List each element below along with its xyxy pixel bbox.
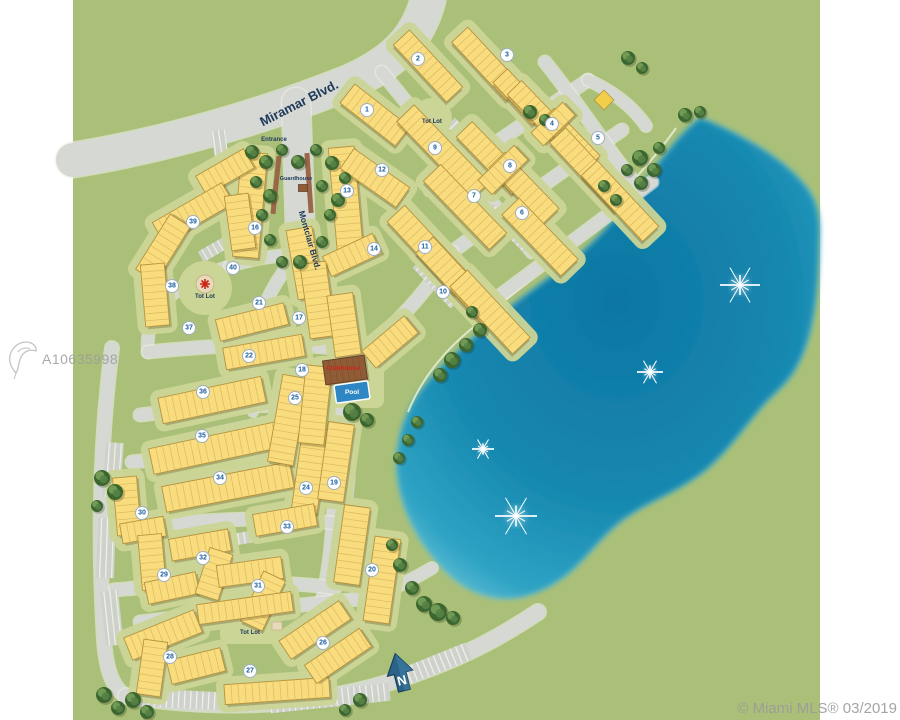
mls-site-plan-photo: 1234567891011121314161718192021222425262…	[0, 0, 900, 720]
tree-mid	[451, 616, 458, 623]
building-number-badge: 17	[293, 312, 306, 325]
building-number-badge: 30	[136, 507, 149, 520]
badge-number: 8	[508, 163, 512, 170]
badge-number: 29	[160, 572, 168, 579]
badge-number: 22	[245, 353, 253, 360]
badge-number: 19	[330, 480, 338, 487]
badge-number: 37	[185, 325, 193, 332]
badge-number: 28	[166, 654, 174, 661]
badge-number: 10	[439, 289, 447, 296]
building-number-badge: 37	[183, 322, 196, 335]
tree-mid	[438, 373, 445, 380]
badge-number: 39	[189, 219, 197, 226]
tree-mid	[657, 146, 663, 152]
badge-number: 24	[302, 485, 310, 492]
tree-mid	[638, 155, 646, 163]
tree-mid	[268, 238, 274, 244]
badge-number: 21	[255, 300, 263, 307]
badge-number: 3	[505, 52, 509, 59]
label-tot-lot-south: Tot Lot	[240, 630, 260, 636]
playground-icon	[200, 279, 210, 289]
tree-mid	[320, 184, 326, 190]
tree-mid	[683, 113, 690, 120]
building-number-badge: 13	[341, 185, 354, 198]
tree-mid	[365, 418, 372, 425]
mls-watermark: A10635998	[6, 338, 118, 380]
tree-mid	[330, 161, 337, 168]
badge-number: 1	[365, 107, 369, 114]
building-number-badge: 31	[252, 580, 265, 593]
building-number-badge: 11	[419, 241, 432, 254]
tree-mid	[145, 710, 152, 717]
tree-mid	[260, 213, 266, 219]
tree-mid	[639, 181, 646, 188]
badge-number: 35	[198, 433, 206, 440]
badge-number: 16	[251, 225, 259, 232]
tree-mid	[296, 160, 303, 167]
tree-mid	[298, 260, 305, 267]
watermark-id: A10635998	[42, 351, 118, 367]
tree-mid	[343, 176, 349, 182]
fountain-center	[514, 514, 518, 518]
site-plan-map: 1234567891011121314161718192021222425262…	[0, 0, 900, 720]
tree-mid	[415, 420, 421, 426]
building-number-badge: 18	[296, 364, 309, 377]
building-number-badge: 24	[300, 482, 313, 495]
label-tot-lot-north: Tot Lot	[422, 119, 442, 125]
fountain-center	[648, 370, 652, 374]
building-number-badge: 9	[429, 142, 442, 155]
building-number-badge: 38	[166, 280, 179, 293]
badge-number: 38	[168, 283, 176, 290]
mls-credit: © Miami MLS® 03/2019	[737, 700, 897, 717]
tree-mid	[280, 260, 286, 266]
tree-mid	[314, 148, 320, 154]
label-tot-lot-west: Tot Lot	[195, 294, 215, 300]
badge-number: 32	[199, 555, 207, 562]
tree-mid	[100, 475, 108, 483]
building-number-badge: 2	[412, 53, 425, 66]
badge-number: 33	[283, 524, 291, 531]
building-number-badge: 4	[546, 118, 559, 131]
building-number-badge: 39	[187, 216, 200, 229]
tree-mid	[113, 489, 121, 497]
tree-mid	[625, 168, 631, 174]
building-number-badge: 29	[158, 569, 171, 582]
tree-mid	[422, 601, 430, 609]
building-number-badge: 14	[368, 243, 381, 256]
tree-mid	[95, 504, 101, 510]
building-number-badge: 19	[328, 477, 341, 490]
building-number-badge: 40	[227, 262, 240, 275]
tree-mid	[464, 343, 471, 350]
badge-number: 27	[246, 668, 254, 675]
badge-number: 12	[378, 167, 386, 174]
tree-mid	[131, 697, 139, 705]
label-entrance: Entrance	[261, 137, 287, 143]
building-number-badge: 21	[253, 297, 266, 310]
building-number-badge: 6	[516, 207, 529, 220]
bird-logo-icon	[6, 338, 40, 380]
badge-number: 34	[216, 475, 224, 482]
tree-mid	[435, 609, 444, 618]
tree-mid	[268, 194, 275, 201]
tree-mid	[328, 213, 334, 219]
tree-mid	[470, 310, 476, 316]
badge-number: 6	[520, 210, 524, 217]
building-number-badge: 3	[501, 49, 514, 62]
tree-mid	[254, 180, 260, 186]
badge-number: 18	[298, 367, 306, 374]
building-number-badge: 26	[317, 637, 330, 650]
badge-number: 2	[416, 56, 420, 63]
tree-mid	[336, 198, 343, 205]
building-number-badge: 5	[592, 132, 605, 145]
tree-mid	[602, 184, 608, 190]
tree-mid	[406, 438, 412, 444]
badge-number: 14	[370, 246, 378, 253]
tot-lot-south-court	[272, 622, 282, 630]
building-number-badge: 10	[437, 286, 450, 299]
badge-number: 7	[472, 193, 476, 200]
tree-mid	[250, 150, 257, 157]
badge-number: 9	[433, 145, 437, 152]
tree-mid	[450, 357, 458, 365]
badge-number: 20	[368, 567, 376, 574]
building-number-badge: 25	[289, 392, 302, 405]
building-number-badge: 12	[376, 164, 389, 177]
badge-number: 30	[138, 510, 146, 517]
label-pool: Pool	[345, 389, 359, 396]
building-number-badge: 1	[361, 104, 374, 117]
building-number-badge: 35	[196, 430, 209, 443]
building-number-badge: 20	[366, 564, 379, 577]
badge-number: 4	[550, 121, 554, 128]
tree-mid	[280, 148, 286, 154]
building-number-badge: 8	[504, 160, 517, 173]
tree-mid	[398, 563, 405, 570]
badge-number: 26	[319, 640, 327, 647]
building-body	[140, 263, 169, 327]
building-number-badge: 28	[164, 651, 177, 664]
tree-mid	[358, 698, 365, 705]
tree-mid	[264, 160, 271, 167]
badge-number: 11	[421, 244, 429, 251]
guardhouse-building	[299, 185, 308, 192]
tree-mid	[102, 692, 110, 700]
building-number-badge: 16	[249, 222, 262, 235]
fountain-center	[481, 447, 485, 451]
tree-mid	[349, 409, 358, 418]
building-number-badge: 33	[281, 521, 294, 534]
tree-mid	[528, 110, 535, 117]
badge-number: 13	[343, 188, 351, 195]
badge-number: 5	[596, 135, 600, 142]
tree-mid	[614, 198, 620, 204]
tree-mid	[652, 168, 659, 175]
tree-mid	[410, 586, 417, 593]
label-guardhouse: Guardhouse	[280, 176, 312, 182]
tree-mid	[116, 706, 123, 713]
badge-number: 25	[291, 395, 299, 402]
building-number-badge: 7	[468, 190, 481, 203]
tree-mid	[478, 328, 485, 335]
badge-number: 36	[199, 389, 207, 396]
building-number-badge: 27	[244, 665, 257, 678]
fountain-center	[738, 283, 742, 287]
tree-mid	[640, 66, 646, 72]
badge-number: 31	[254, 583, 262, 590]
tree-mid	[698, 110, 704, 116]
building-number-badge: 36	[197, 386, 210, 399]
label-clubhouse: Clubhouse	[326, 365, 360, 372]
building-number-badge: 32	[197, 552, 210, 565]
building-number-badge: 22	[243, 350, 256, 363]
tree-mid	[397, 456, 403, 462]
badge-number: 40	[229, 265, 237, 272]
tree-mid	[390, 543, 396, 549]
tree-mid	[343, 708, 349, 714]
building-number-badge: 34	[214, 472, 227, 485]
tree-mid	[626, 56, 633, 63]
tree-mid	[320, 240, 326, 246]
badge-number: 17	[295, 315, 303, 322]
